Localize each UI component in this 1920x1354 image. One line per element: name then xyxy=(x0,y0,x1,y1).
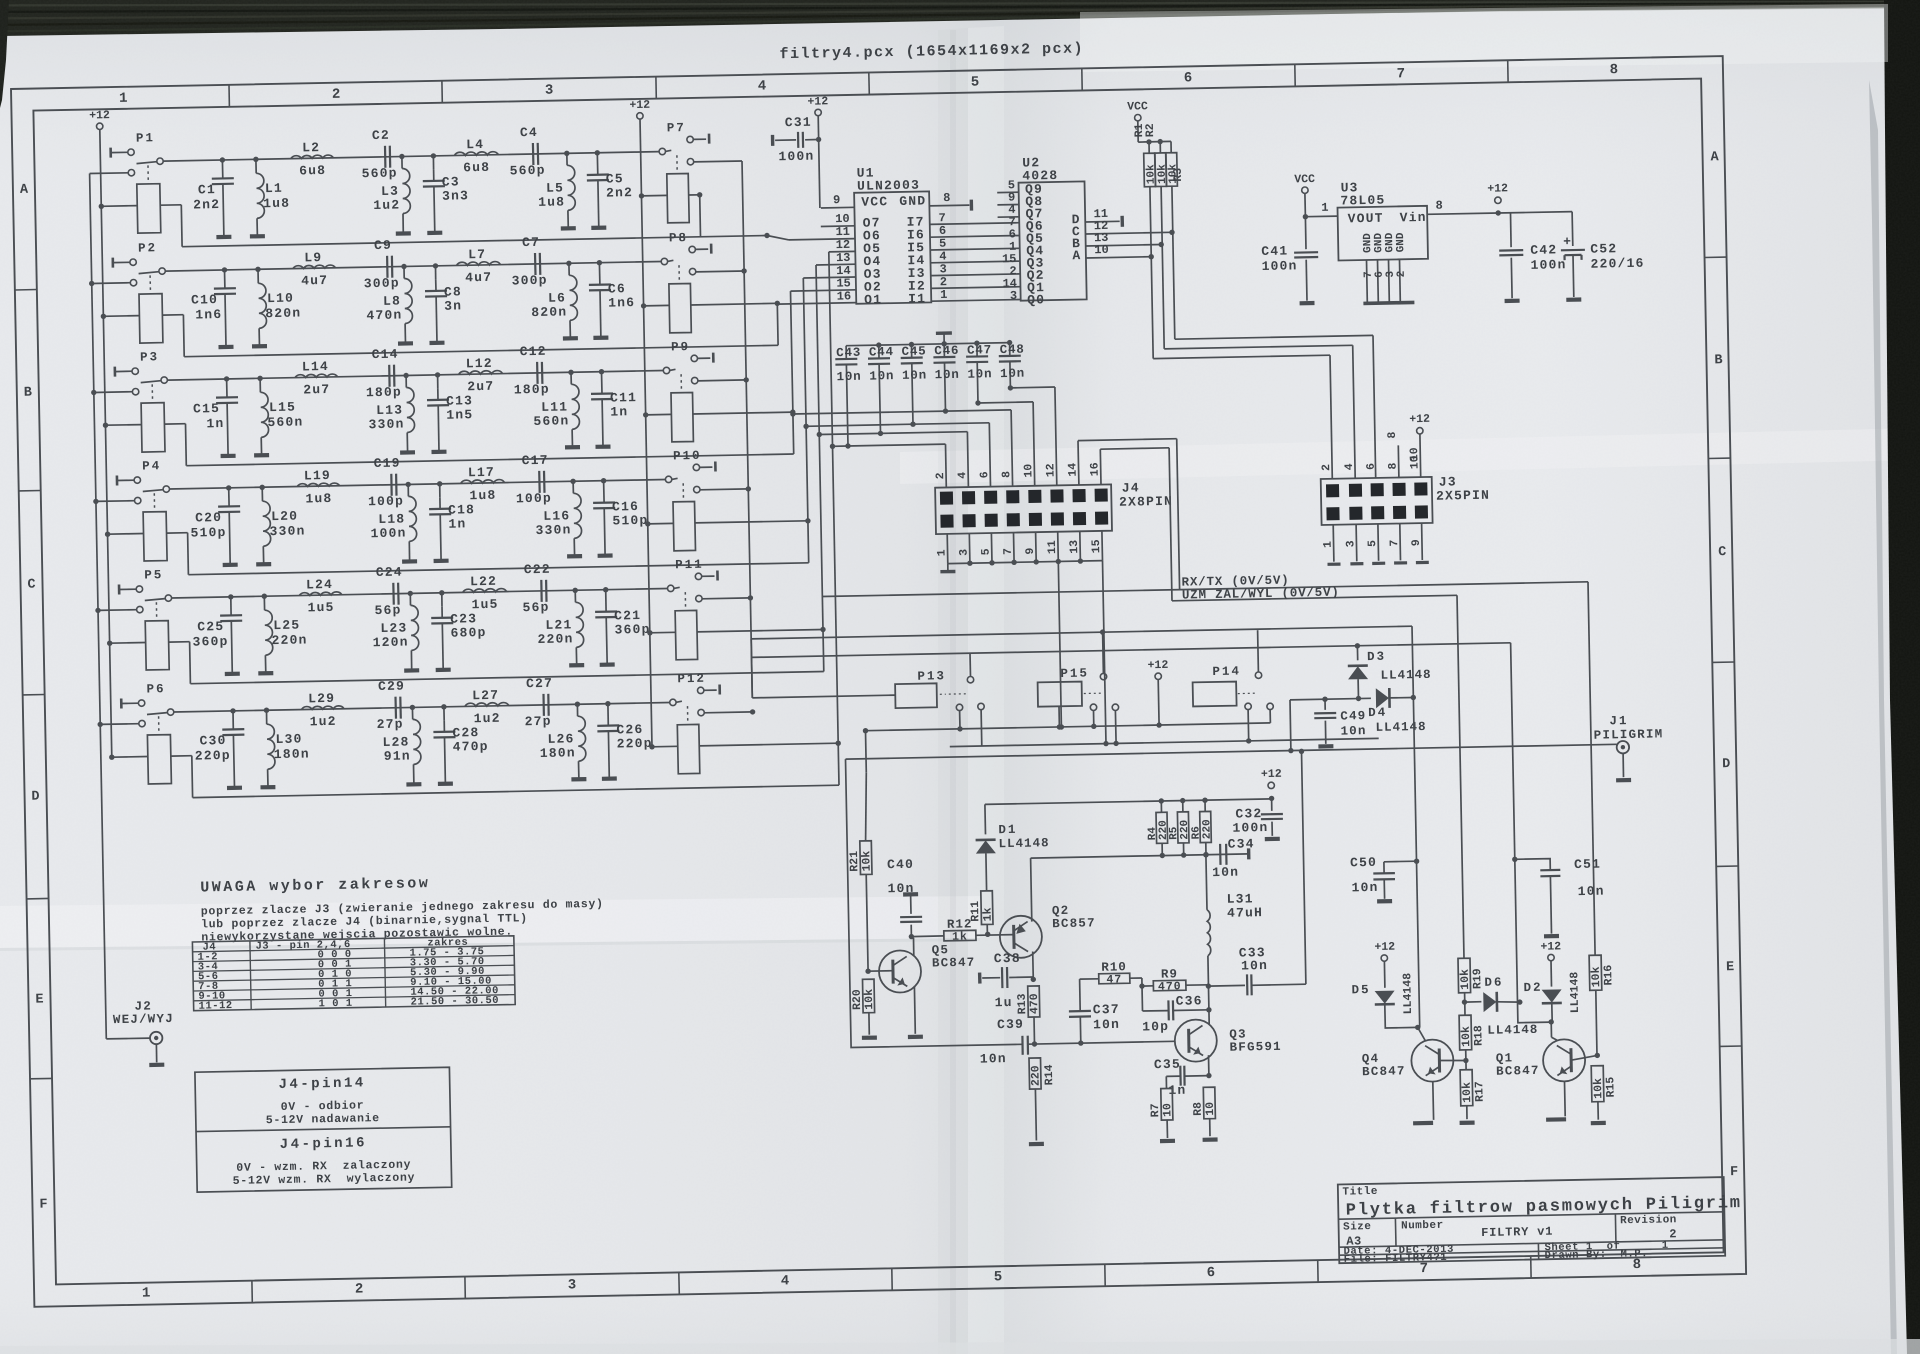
svg-text:P15: P15 xyxy=(1060,666,1089,681)
svg-text:9: 9 xyxy=(1410,539,1423,546)
svg-text:P7: P7 xyxy=(667,121,686,135)
svg-text:BC847: BC847 xyxy=(1362,1064,1406,1079)
svg-text:2: 2 xyxy=(355,1281,364,1297)
svg-text:P10: P10 xyxy=(673,449,702,464)
svg-text:F: F xyxy=(39,1198,47,1213)
svg-text:300p: 300p xyxy=(364,276,400,292)
svg-text:1n: 1n xyxy=(448,516,466,531)
svg-text:Title: Title xyxy=(1342,1186,1378,1199)
svg-text:R2: R2 xyxy=(1144,123,1157,137)
svg-text:P12: P12 xyxy=(677,672,706,687)
svg-text:L22: L22 xyxy=(470,574,497,590)
svg-text:Vin: Vin xyxy=(1400,210,1427,226)
svg-text:10: 10 xyxy=(1204,1102,1217,1116)
svg-text:VCC: VCC xyxy=(861,194,888,210)
svg-text:510p: 510p xyxy=(612,513,648,529)
svg-text:C39: C39 xyxy=(997,1017,1024,1033)
svg-text:BC847: BC847 xyxy=(1496,1064,1540,1079)
svg-text:WEJ/WYJ: WEJ/WYJ xyxy=(113,1012,174,1027)
svg-text:10k: 10k xyxy=(1460,1026,1473,1047)
svg-text:P3: P3 xyxy=(140,350,159,364)
svg-text:56p: 56p xyxy=(374,603,401,619)
svg-text:1n6: 1n6 xyxy=(195,307,222,323)
svg-text:C43: C43 xyxy=(836,346,861,360)
svg-text:220: 220 xyxy=(1029,1065,1042,1086)
svg-text:330n: 330n xyxy=(535,522,571,538)
svg-text:Drawn By: M.P.: Drawn By: M.P. xyxy=(1545,1248,1649,1262)
svg-text:360p: 360p xyxy=(192,634,228,650)
svg-text:C8: C8 xyxy=(444,284,462,299)
svg-text:11-12: 11-12 xyxy=(199,1000,233,1013)
svg-text:C25: C25 xyxy=(197,619,224,635)
svg-text:1u: 1u xyxy=(995,995,1013,1010)
svg-text:C45: C45 xyxy=(902,345,927,359)
svg-text:D2: D2 xyxy=(1523,981,1542,995)
svg-text:7: 7 xyxy=(1002,548,1015,555)
svg-text:+12: +12 xyxy=(1374,941,1395,954)
svg-text:10n: 10n xyxy=(902,368,927,382)
svg-text:8: 8 xyxy=(1386,431,1399,438)
svg-text:1u8: 1u8 xyxy=(538,194,565,210)
svg-text:1u2: 1u2 xyxy=(473,711,500,727)
svg-text:10: 10 xyxy=(1408,447,1421,461)
svg-text:1u8: 1u8 xyxy=(469,488,496,504)
svg-text:P11: P11 xyxy=(675,558,704,573)
svg-text:C37: C37 xyxy=(1093,1002,1120,1018)
svg-text:330n: 330n xyxy=(269,523,305,539)
svg-text:R7: R7 xyxy=(1149,1103,1162,1117)
svg-text:2X5PIN: 2X5PIN xyxy=(1436,488,1490,504)
svg-text:D1: D1 xyxy=(998,823,1017,837)
svg-text:8: 8 xyxy=(1610,62,1619,78)
svg-text:C10: C10 xyxy=(191,292,218,308)
svg-text:BC847: BC847 xyxy=(932,956,976,971)
svg-text:1u5: 1u5 xyxy=(471,597,498,613)
svg-text:1u2: 1u2 xyxy=(310,714,337,730)
svg-text:C40: C40 xyxy=(887,857,914,873)
svg-text:120n: 120n xyxy=(373,635,409,651)
svg-text:510p: 510p xyxy=(190,525,226,541)
svg-text:1n: 1n xyxy=(206,416,224,431)
svg-text:J4-pin16: J4-pin16 xyxy=(280,1135,368,1153)
svg-text:180p: 180p xyxy=(514,382,550,398)
svg-text:4: 4 xyxy=(1343,463,1356,470)
svg-text:L20: L20 xyxy=(271,509,298,525)
svg-text:C38: C38 xyxy=(994,951,1021,967)
svg-text:LL4148: LL4148 xyxy=(1380,668,1431,683)
svg-text:R11: R11 xyxy=(969,901,982,922)
svg-text:PILIGRIM: PILIGRIM xyxy=(1594,727,1664,742)
svg-text:L5: L5 xyxy=(546,180,564,195)
svg-text:C34: C34 xyxy=(1228,836,1255,852)
svg-text:2u7: 2u7 xyxy=(467,379,494,395)
svg-text:10k: 10k xyxy=(1590,966,1603,987)
svg-text:1: 1 xyxy=(142,1286,151,1302)
svg-text:10k: 10k xyxy=(1459,969,1472,990)
svg-text:1u8: 1u8 xyxy=(263,196,290,212)
svg-text:C18: C18 xyxy=(448,502,475,518)
svg-text:10n: 10n xyxy=(1351,880,1378,896)
svg-text:680p: 680p xyxy=(450,625,486,641)
svg-text:4u7: 4u7 xyxy=(465,270,492,286)
svg-text:L19: L19 xyxy=(304,468,331,484)
svg-text:100n: 100n xyxy=(1530,257,1566,273)
svg-text:91n: 91n xyxy=(384,748,411,764)
svg-text:470p: 470p xyxy=(453,739,489,755)
svg-text:4: 4 xyxy=(758,79,767,95)
svg-text:470: 470 xyxy=(1028,993,1041,1014)
svg-text:P14: P14 xyxy=(1212,664,1241,679)
svg-text:R21: R21 xyxy=(848,851,861,872)
svg-text:1 0 1: 1 0 1 xyxy=(319,998,353,1011)
svg-text:2n2: 2n2 xyxy=(193,197,220,213)
svg-text:J4-pin14: J4-pin14 xyxy=(278,1075,366,1093)
svg-text:300p: 300p xyxy=(512,273,548,289)
svg-text:D: D xyxy=(1722,757,1730,772)
svg-text:10n: 10n xyxy=(1000,367,1025,381)
svg-text:C9: C9 xyxy=(374,238,392,253)
svg-text:220: 220 xyxy=(1201,819,1213,839)
svg-text:180n: 180n xyxy=(540,745,576,761)
svg-text:10n: 10n xyxy=(980,1051,1007,1067)
svg-text:180p: 180p xyxy=(366,385,402,401)
svg-text:220n: 220n xyxy=(537,631,573,647)
svg-text:6: 6 xyxy=(1207,1265,1216,1281)
svg-text:5: 5 xyxy=(994,1269,1003,1285)
svg-text:10n: 10n xyxy=(935,368,960,382)
svg-text:1k: 1k xyxy=(981,907,994,921)
svg-text:L14: L14 xyxy=(302,359,329,375)
svg-text:C49: C49 xyxy=(1340,709,1366,723)
svg-text:3: 3 xyxy=(545,83,554,99)
svg-text:C35: C35 xyxy=(1154,1057,1181,1073)
svg-text:820n: 820n xyxy=(531,304,567,320)
svg-text:100n: 100n xyxy=(1232,820,1268,836)
svg-text:E: E xyxy=(1726,960,1734,975)
svg-text:560n: 560n xyxy=(533,413,569,429)
svg-text:10: 10 xyxy=(1161,1103,1174,1117)
svg-text:Size: Size xyxy=(1343,1221,1372,1234)
svg-text:100n: 100n xyxy=(778,149,814,165)
svg-text:100p: 100p xyxy=(368,494,404,510)
svg-text:56p: 56p xyxy=(522,600,549,616)
svg-text:+: + xyxy=(1563,234,1571,249)
svg-text:B: B xyxy=(1714,353,1722,368)
svg-text:O1: O1 xyxy=(864,292,882,307)
svg-text:+12: +12 xyxy=(1540,940,1561,953)
svg-text:1: 1 xyxy=(940,288,947,302)
svg-text:6: 6 xyxy=(1365,463,1378,470)
svg-text:L25: L25 xyxy=(273,618,300,634)
svg-text:7: 7 xyxy=(1388,539,1401,546)
svg-text:LL4148: LL4148 xyxy=(1568,972,1582,1014)
svg-text:R14: R14 xyxy=(1043,1064,1056,1085)
svg-text:21.50 - 30.50: 21.50 - 30.50 xyxy=(411,995,500,1009)
svg-text:10: 10 xyxy=(1022,464,1035,478)
svg-text:47uH: 47uH xyxy=(1227,905,1263,921)
svg-text:560n: 560n xyxy=(267,414,303,430)
svg-text:VOUT: VOUT xyxy=(1348,211,1384,227)
svg-text:L9: L9 xyxy=(304,250,322,265)
svg-text:360p: 360p xyxy=(614,622,650,638)
svg-text:820n: 820n xyxy=(265,306,301,322)
svg-text:Revision: Revision xyxy=(1620,1214,1677,1227)
svg-text:C5: C5 xyxy=(606,171,624,186)
svg-text:C4: C4 xyxy=(520,125,538,140)
svg-text:C: C xyxy=(1718,545,1726,560)
svg-text:R19: R19 xyxy=(1471,968,1484,989)
svg-text:P9: P9 xyxy=(671,340,690,354)
svg-text:C41: C41 xyxy=(1261,243,1288,259)
svg-text:180n: 180n xyxy=(274,746,310,762)
svg-text:L7: L7 xyxy=(468,247,486,262)
svg-text:C50: C50 xyxy=(1350,855,1377,871)
svg-text:+12: +12 xyxy=(89,109,110,122)
svg-text:C52: C52 xyxy=(1590,241,1617,257)
svg-text:C17: C17 xyxy=(522,453,549,469)
svg-text:220p: 220p xyxy=(617,736,653,752)
svg-text:560p: 560p xyxy=(362,166,398,182)
svg-text:10n: 10n xyxy=(1093,1017,1120,1033)
svg-text:9: 9 xyxy=(833,193,840,207)
svg-text:D3: D3 xyxy=(1367,650,1386,664)
svg-text:2n2: 2n2 xyxy=(606,185,633,201)
svg-text:E: E xyxy=(35,993,43,1008)
svg-text:2u7: 2u7 xyxy=(303,382,330,398)
svg-text:2: 2 xyxy=(1396,271,1408,278)
svg-text:12: 12 xyxy=(1044,463,1057,477)
svg-text:2: 2 xyxy=(332,87,341,103)
svg-text:1u8: 1u8 xyxy=(305,491,332,507)
svg-text:100n: 100n xyxy=(370,526,406,542)
svg-text:C42: C42 xyxy=(1530,242,1557,258)
svg-text:C46: C46 xyxy=(934,344,959,358)
svg-text:+12: +12 xyxy=(1487,182,1508,195)
svg-text:+12: +12 xyxy=(1261,768,1282,781)
svg-text:+12: +12 xyxy=(629,99,650,112)
svg-text:3: 3 xyxy=(1344,540,1357,547)
svg-text:LL4148: LL4148 xyxy=(1375,720,1426,735)
svg-text:6: 6 xyxy=(1184,70,1193,86)
svg-text:10n: 10n xyxy=(1340,724,1366,738)
svg-text:VCC: VCC xyxy=(1127,100,1148,113)
svg-text:3: 3 xyxy=(568,1277,577,1293)
svg-text:FILTRY v1: FILTRY v1 xyxy=(1481,1225,1553,1240)
svg-text:1n: 1n xyxy=(1168,1083,1186,1098)
svg-text:P6: P6 xyxy=(146,682,165,696)
svg-text:VCC: VCC xyxy=(1294,173,1315,186)
svg-text:C29: C29 xyxy=(378,679,405,695)
svg-text:L1: L1 xyxy=(265,181,283,196)
svg-text:C31: C31 xyxy=(785,115,812,131)
svg-text:R20: R20 xyxy=(851,989,864,1010)
svg-text:1: 1 xyxy=(1321,201,1328,215)
svg-text:6u8: 6u8 xyxy=(463,160,490,176)
svg-text:1: 1 xyxy=(935,549,948,556)
svg-text:L6: L6 xyxy=(548,290,566,305)
svg-text:100p: 100p xyxy=(516,491,552,507)
svg-text:1n5: 1n5 xyxy=(446,407,473,423)
svg-text:8: 8 xyxy=(1435,199,1442,213)
svg-text:L27: L27 xyxy=(472,688,499,704)
svg-text:GND: GND xyxy=(899,193,926,209)
svg-text:C22: C22 xyxy=(524,562,551,578)
svg-text:16: 16 xyxy=(837,289,852,303)
svg-text:J4: J4 xyxy=(1122,480,1140,495)
svg-text:D4: D4 xyxy=(1368,706,1387,720)
svg-text:J1: J1 xyxy=(1609,714,1628,728)
svg-text:P13: P13 xyxy=(917,669,946,684)
svg-text:10n: 10n xyxy=(1578,884,1605,900)
svg-text:C7: C7 xyxy=(522,235,540,250)
svg-text:B: B xyxy=(24,386,32,401)
svg-text:L29: L29 xyxy=(308,691,335,707)
svg-text:C1: C1 xyxy=(198,182,216,197)
svg-text:LL4148: LL4148 xyxy=(1487,1023,1538,1038)
svg-text:R13: R13 xyxy=(1016,993,1029,1014)
svg-text:C3: C3 xyxy=(442,174,460,189)
svg-text:File: FILTRY4?1: File: FILTRY4?1 xyxy=(1344,1252,1448,1266)
svg-text:27p: 27p xyxy=(525,714,552,730)
svg-text:D6: D6 xyxy=(1484,976,1503,990)
svg-text:1n6: 1n6 xyxy=(608,295,635,311)
svg-text:10n: 10n xyxy=(887,881,914,897)
svg-text:1u5: 1u5 xyxy=(307,600,334,616)
svg-text:2: 2 xyxy=(1669,1227,1677,1241)
svg-text:8: 8 xyxy=(943,191,950,205)
svg-text:470: 470 xyxy=(1158,980,1182,993)
svg-text:10n: 10n xyxy=(1241,958,1268,974)
svg-text:C27: C27 xyxy=(526,676,553,692)
svg-text:Q0: Q0 xyxy=(1027,292,1045,307)
svg-text:L2: L2 xyxy=(302,140,320,155)
svg-text:3n: 3n xyxy=(444,298,462,313)
svg-text:10k: 10k xyxy=(860,851,873,872)
svg-text:L12: L12 xyxy=(466,356,493,372)
svg-text:3n3: 3n3 xyxy=(442,188,469,204)
svg-text:C15: C15 xyxy=(193,401,220,417)
svg-text:10n: 10n xyxy=(837,370,862,384)
svg-text:BC857: BC857 xyxy=(1052,916,1096,931)
svg-text:L17: L17 xyxy=(468,465,495,481)
svg-text:L4: L4 xyxy=(466,137,484,152)
svg-text:C30: C30 xyxy=(199,733,226,749)
svg-text:C11: C11 xyxy=(610,390,637,406)
svg-text:1n: 1n xyxy=(610,404,628,419)
svg-text:C51: C51 xyxy=(1574,857,1601,873)
svg-text:P4: P4 xyxy=(142,459,161,473)
svg-text:P8: P8 xyxy=(669,231,688,245)
svg-text:220p: 220p xyxy=(195,748,231,764)
svg-text:+12: +12 xyxy=(1147,659,1168,672)
svg-text:220/16: 220/16 xyxy=(1590,256,1644,272)
svg-text:C24: C24 xyxy=(376,565,403,581)
svg-text:C12: C12 xyxy=(519,344,546,360)
svg-text:4: 4 xyxy=(956,472,969,479)
svg-text:8: 8 xyxy=(1000,471,1013,478)
svg-text:R15: R15 xyxy=(1604,1077,1617,1098)
svg-text:+12: +12 xyxy=(807,95,828,108)
svg-text:330n: 330n xyxy=(368,417,404,433)
svg-text:10p: 10p xyxy=(1142,1019,1169,1035)
svg-text:A: A xyxy=(20,183,29,198)
svg-text:C44: C44 xyxy=(869,345,894,359)
svg-text:1: 1 xyxy=(119,91,128,107)
svg-text:L8: L8 xyxy=(383,294,401,309)
svg-text:F: F xyxy=(1730,1165,1738,1180)
svg-text:10k: 10k xyxy=(1167,163,1179,183)
svg-text:10n: 10n xyxy=(1212,865,1239,881)
svg-text:5: 5 xyxy=(980,548,993,555)
svg-text:1k: 1k xyxy=(952,930,968,943)
svg-text:GND: GND xyxy=(1395,232,1407,252)
svg-text:C14: C14 xyxy=(371,347,398,363)
svg-text:P5: P5 xyxy=(144,568,163,582)
svg-text:4u7: 4u7 xyxy=(301,273,328,289)
svg-text:3: 3 xyxy=(958,549,971,556)
svg-text:560p: 560p xyxy=(509,163,545,179)
svg-text:C20: C20 xyxy=(195,510,222,526)
svg-text:2X8PIN: 2X8PIN xyxy=(1119,494,1173,510)
svg-text:Number: Number xyxy=(1401,1220,1444,1233)
svg-text:3: 3 xyxy=(1010,289,1017,303)
svg-text:220n: 220n xyxy=(271,632,307,648)
svg-text:4: 4 xyxy=(781,1273,790,1289)
svg-text:9: 9 xyxy=(1024,547,1037,554)
svg-text:2: 2 xyxy=(1320,464,1333,471)
svg-text:1u2: 1u2 xyxy=(373,198,400,214)
svg-text:A: A xyxy=(1072,248,1081,263)
svg-text:100n: 100n xyxy=(1261,258,1297,274)
svg-text:+12: +12 xyxy=(1409,413,1430,426)
svg-text:D5: D5 xyxy=(1351,983,1370,997)
svg-text:10k: 10k xyxy=(863,989,876,1010)
svg-text:C48: C48 xyxy=(1000,343,1025,357)
svg-text:R18: R18 xyxy=(1472,1025,1485,1046)
svg-text:BFG591: BFG591 xyxy=(1230,1040,1282,1055)
svg-text:10k: 10k xyxy=(1461,1082,1474,1103)
svg-text:10n: 10n xyxy=(967,367,992,381)
svg-text:C36: C36 xyxy=(1176,993,1203,1009)
svg-text:C47: C47 xyxy=(967,343,992,357)
svg-text:C6: C6 xyxy=(608,281,626,296)
svg-text:7: 7 xyxy=(1397,66,1406,82)
svg-text:R17: R17 xyxy=(1473,1081,1486,1102)
svg-text:L24: L24 xyxy=(306,577,333,593)
svg-text:10: 10 xyxy=(1094,243,1109,257)
svg-text:27p: 27p xyxy=(377,717,404,733)
svg-text:6: 6 xyxy=(978,471,991,478)
svg-text:C2: C2 xyxy=(372,128,390,143)
svg-text:5: 5 xyxy=(1366,540,1379,547)
svg-text:5: 5 xyxy=(971,74,980,90)
svg-text:470n: 470n xyxy=(366,308,402,324)
svg-text:10n: 10n xyxy=(869,369,894,383)
svg-text:C: C xyxy=(27,578,35,593)
svg-text:L10: L10 xyxy=(267,291,294,307)
svg-text:P2: P2 xyxy=(138,241,157,255)
svg-text:R16: R16 xyxy=(1602,965,1615,986)
svg-text:5-12V nadawanie: 5-12V nadawanie xyxy=(266,1112,380,1127)
svg-text:D: D xyxy=(31,790,39,805)
svg-text:LL4148: LL4148 xyxy=(999,836,1050,851)
svg-text:R8: R8 xyxy=(1192,1102,1205,1116)
svg-text:LL4148: LL4148 xyxy=(1401,973,1415,1015)
svg-text:2: 2 xyxy=(934,472,947,479)
svg-text:L30: L30 xyxy=(275,731,302,747)
svg-text:C19: C19 xyxy=(374,456,401,472)
svg-text:A: A xyxy=(1710,150,1719,165)
